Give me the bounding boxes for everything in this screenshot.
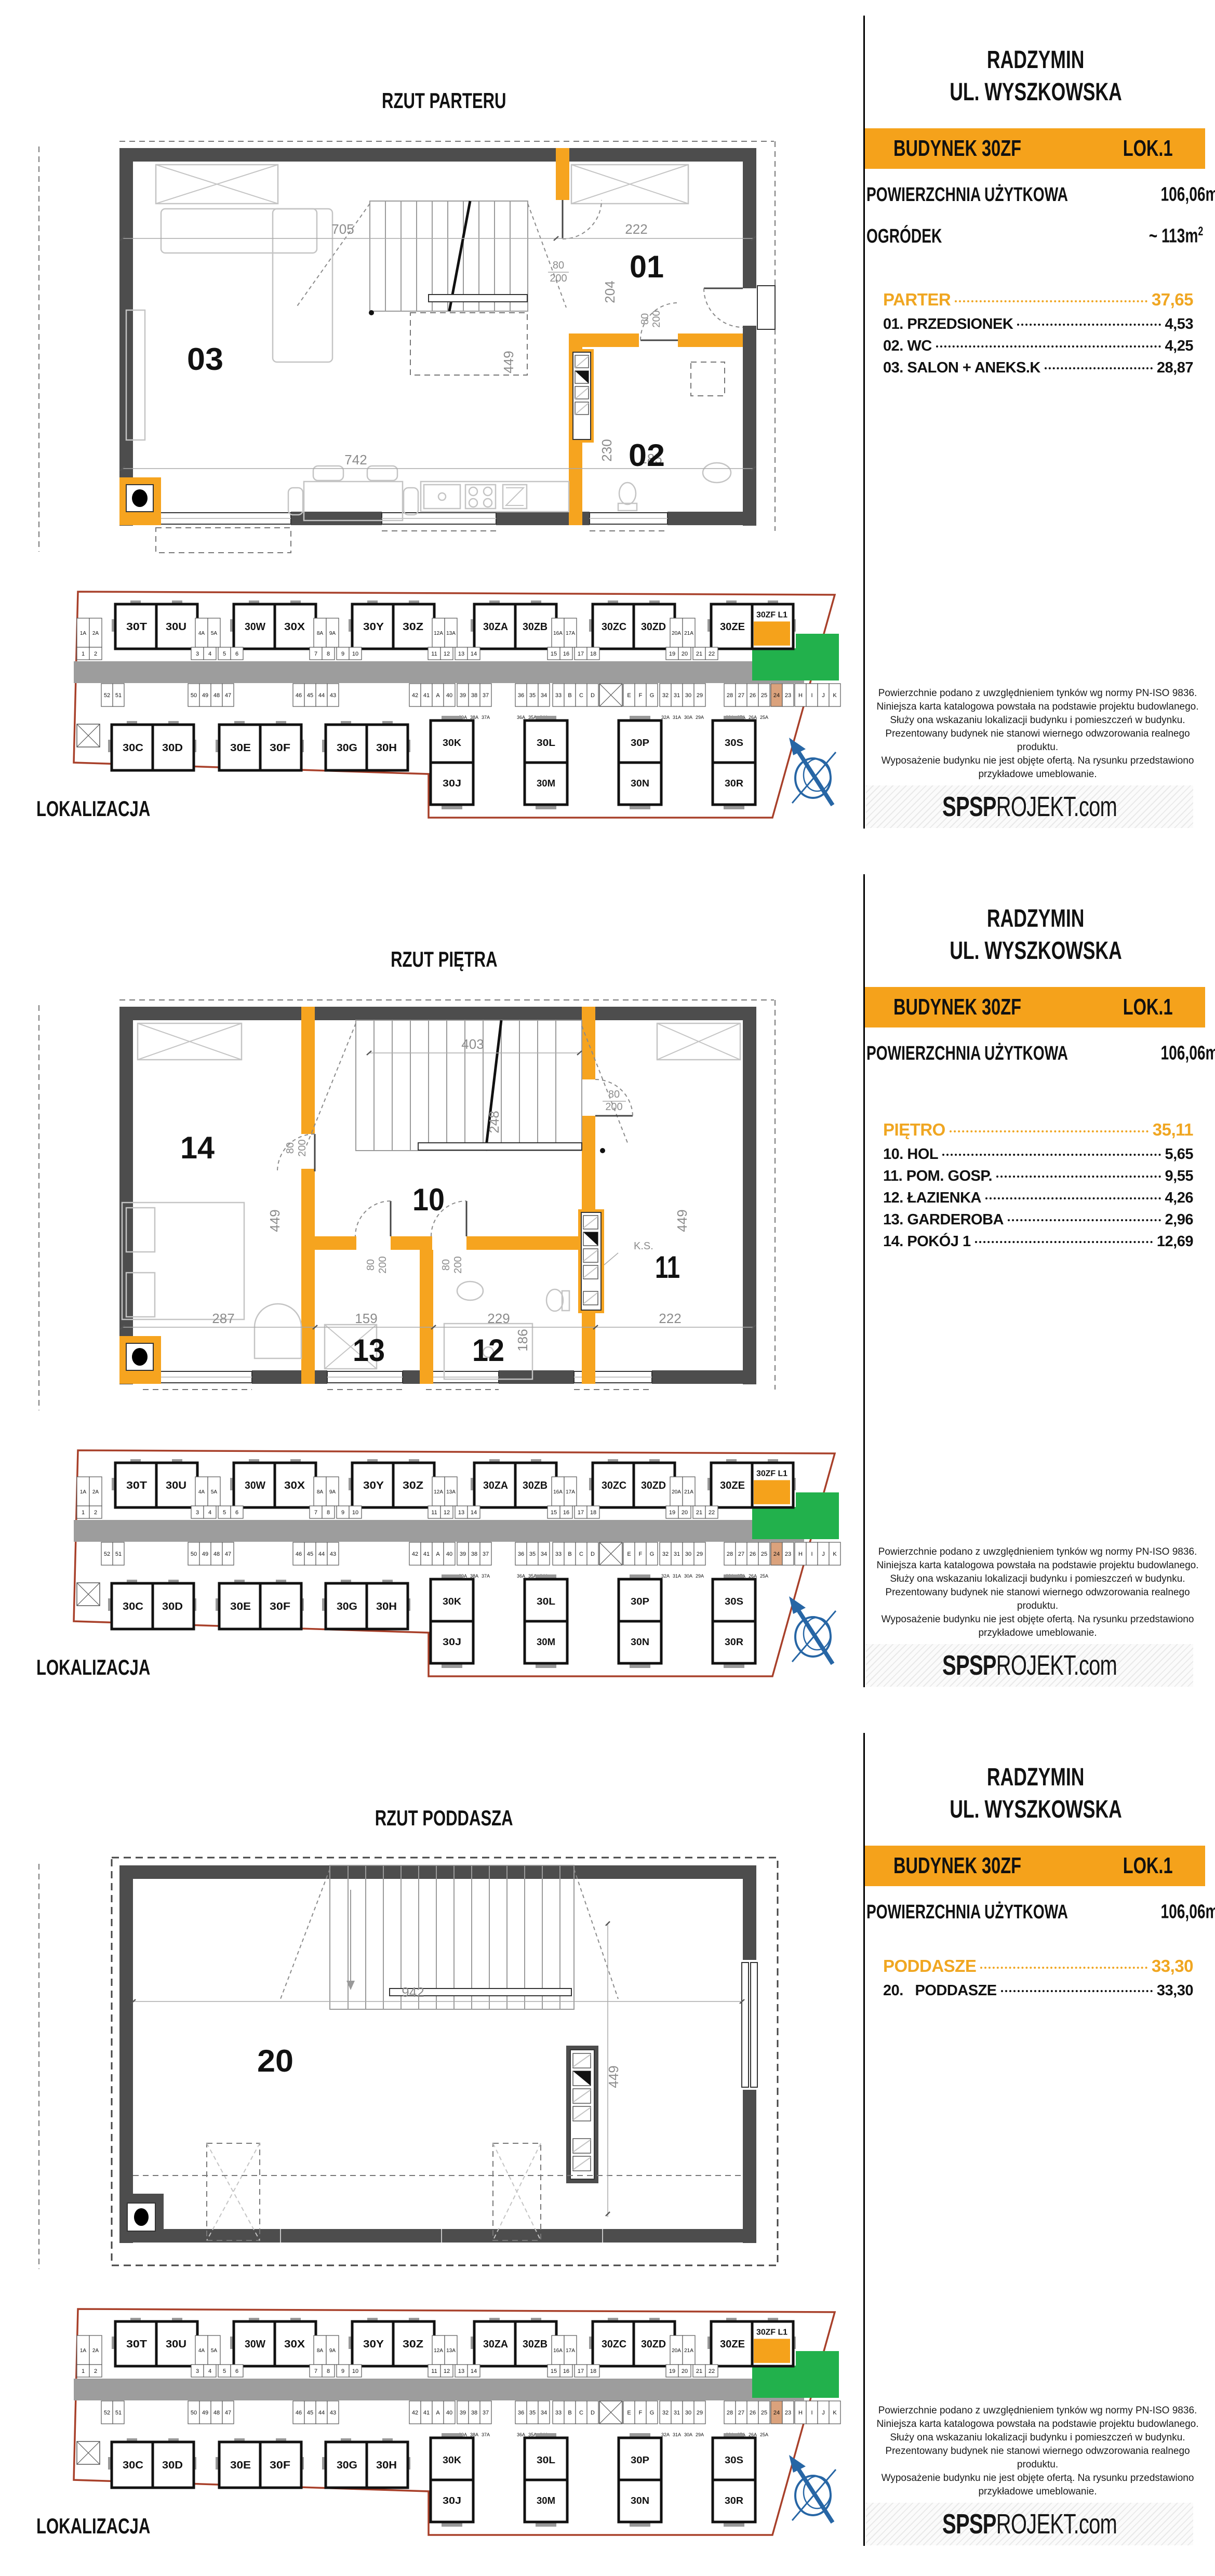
road	[74, 2379, 804, 2400]
parking-stall-number: 17A	[566, 631, 575, 636]
parking-stall-number: 17	[578, 651, 584, 657]
parking-stall-number: 13	[458, 2368, 464, 2374]
logo-suffix: .com	[1073, 2508, 1117, 2540]
disclaimer-line: Wyposażenie budynku nie jest objęte ofer…	[867, 2472, 1208, 2485]
parking-stall-number: 43	[330, 2410, 336, 2416]
house-label-30W: 30W	[245, 2339, 265, 2350]
parking-sub-number: 25A	[760, 1573, 768, 1579]
parking-stall-number: 18	[590, 1510, 596, 1516]
parking-stall-number: 14	[471, 651, 477, 657]
parking-sub-number: 29A	[696, 715, 704, 720]
svg-text:02: 02	[629, 438, 665, 473]
house-label-30ZE: 30ZE	[720, 1480, 745, 1491]
disclaimer-line: Powierzchnie podano z uwzględnieniem tyn…	[867, 687, 1208, 700]
usable-area-row: POWIERZCHNIA UŻYTKOWA 106,06m2	[866, 1042, 1203, 1065]
parking-stall-number: D	[591, 1551, 595, 1557]
room-area-value: 12,69	[1157, 1233, 1193, 1250]
parking-stall-number: 10	[352, 1510, 358, 1516]
room-label: 02. WC	[883, 338, 932, 355]
leader-dots	[980, 1967, 1147, 1969]
parking-stall-number: 36	[518, 2410, 524, 2416]
parking-stall-number: 48	[213, 2410, 220, 2416]
map-caption: LOKALIZACJA	[36, 796, 190, 821]
dim-lines	[131, 1921, 744, 2217]
leader-dots	[1045, 367, 1153, 369]
room-label: 03. SALON + ANEKS.K	[883, 359, 1040, 377]
house-label-30Y: 30Y	[363, 2339, 384, 2350]
parking-stall-number: 41	[423, 2410, 430, 2416]
highlight-unit-fill	[754, 1480, 790, 1504]
parking-stall-number: 36	[518, 1551, 524, 1557]
house-label-30F: 30F	[270, 2460, 290, 2471]
parking-stall-number: 13	[458, 1510, 464, 1516]
parking-stall-number: 51	[115, 692, 122, 699]
parking-stall-number: G	[650, 692, 655, 699]
garden-area	[752, 1507, 796, 1539]
svg-text:01: 01	[630, 249, 664, 284]
room-row: 14. POKÓJ 112,69	[883, 1233, 1193, 1250]
room-label: 13. GARDEROBA	[883, 1211, 1004, 1229]
logo-suffix: .com	[1073, 791, 1117, 822]
parking-stall-number: 16	[563, 2368, 569, 2374]
house-label-30R: 30R	[725, 778, 743, 789]
svg-text:449: 449	[267, 1209, 283, 1232]
parking-stall-number: 31	[674, 1551, 680, 1557]
svg-text:11: 11	[655, 1250, 680, 1285]
city-title: RADZYMIN	[864, 46, 1207, 74]
house-label-30ZA: 30ZA	[483, 1480, 508, 1491]
parking-stall-number: 2	[94, 651, 97, 657]
room-label: 12. ŁAZIENKA	[883, 1190, 981, 1207]
room-area-value: 33,30	[1152, 1956, 1193, 1976]
parking-stall-number: 8	[327, 1510, 330, 1516]
parking-stall-number: 1A	[80, 1489, 87, 1495]
parking-stall-number: 30	[685, 1551, 691, 1557]
svg-text:222: 222	[659, 1311, 681, 1326]
street-title: UL. WYSZKOWSKA	[864, 937, 1207, 965]
svg-text:200: 200	[452, 1256, 464, 1273]
house-label-30D: 30D	[162, 742, 183, 754]
parking-stall-number: 36	[518, 692, 524, 699]
parking-stall-number: 12	[444, 2368, 450, 2374]
house-label-30X: 30X	[284, 2339, 305, 2350]
logo-light: ROJEKT	[996, 2508, 1074, 2540]
garden-area	[752, 648, 796, 680]
parking-stall-number: 2	[94, 2368, 97, 2374]
parking-stall-number: 35	[529, 1551, 536, 1557]
parking-stall-number: 4	[208, 651, 211, 657]
parking-stall-number: 41	[423, 692, 430, 699]
road	[74, 661, 804, 683]
parking-stall-number: 22	[709, 1510, 715, 1516]
parking-stall-number: 12A	[434, 1489, 443, 1495]
house-label-30K: 30K	[443, 1596, 461, 1607]
parking-stall-number: 45	[307, 2410, 313, 2416]
house-label-30ZC: 30ZC	[602, 2339, 626, 2350]
parking-sub-number: 25A	[760, 2432, 768, 2437]
room-label: PARTER	[883, 290, 951, 310]
house-label-30K: 30K	[443, 738, 461, 748]
page-title: RZUT PODDASZA	[223, 1806, 665, 1831]
disclaimer-line: przykładowe umeblowanie.	[867, 1626, 1208, 1640]
parking-stall-number: 1A	[80, 2348, 87, 2354]
house-label-30M: 30M	[537, 2495, 555, 2506]
house-label-30Z: 30Z	[403, 1480, 423, 1491]
parking-stall-number: 17A	[566, 2348, 575, 2354]
svg-text:705: 705	[331, 221, 354, 237]
parking-stall-number: 1	[82, 2368, 85, 2374]
house-label-30K: 30K	[443, 2455, 461, 2465]
parking-stall-number: C	[579, 692, 583, 699]
parking-stall-number: 3	[196, 2368, 199, 2374]
parking-stall-number: 10	[352, 651, 358, 657]
logo-bold: SPSP	[942, 2508, 996, 2540]
skylights	[133, 2143, 743, 2240]
parking-stall-number: 52	[104, 2410, 110, 2416]
house-label-30ZF L1: 30ZF L1	[756, 1469, 787, 1478]
parking-stall-number: 20	[682, 651, 688, 657]
parking-stall-number: 10	[352, 2368, 358, 2374]
house-label-30T: 30T	[126, 1480, 147, 1491]
parking-stall-number: 34	[541, 692, 547, 699]
house-label-30ZC: 30ZC	[602, 1480, 626, 1491]
house-label-30D: 30D	[162, 2460, 183, 2471]
parking-stall-number: 42	[412, 2410, 418, 2416]
house-label-30ZD: 30ZD	[641, 1480, 666, 1491]
svg-text:287: 287	[212, 1311, 234, 1326]
parking-stall-number: 30	[685, 2410, 691, 2416]
parking-stall-number: 9	[341, 651, 344, 657]
leader-dots	[985, 1197, 1161, 1199]
house-label-30ZA: 30ZA	[483, 621, 508, 633]
parking-stall-number: 9	[341, 2368, 344, 2374]
parking-stall-number: J	[822, 2410, 825, 2416]
parking-stall-number: 13A	[446, 1489, 456, 1495]
house-label-30F: 30F	[270, 1601, 290, 1612]
parking-stall-number: C	[579, 1551, 583, 1557]
house-label-30E: 30E	[230, 742, 251, 754]
parking-stall-number: 49	[202, 2410, 208, 2416]
parking-stall-number: 12	[444, 1510, 450, 1516]
garden-area	[796, 1492, 839, 1539]
parking-stall-number: K	[833, 692, 837, 699]
garden-area	[752, 2366, 796, 2398]
house-label-30ZB: 30ZB	[523, 2339, 548, 2350]
house-label-30G: 30G	[337, 742, 357, 754]
unit-name: LOK.1	[1123, 136, 1173, 162]
house-label-30E: 30E	[230, 2460, 251, 2471]
svg-text:449: 449	[606, 2065, 621, 2088]
parking-stall-number: 24	[773, 2410, 780, 2416]
parking-stall-number: 23	[785, 692, 791, 699]
parking-stall-number: 47	[225, 2410, 231, 2416]
street-title: UL. WYSZKOWSKA	[864, 1795, 1207, 1824]
building-banner: BUDYNEK 30ZF LOK.1	[865, 128, 1205, 169]
svg-text:80: 80	[285, 1142, 296, 1154]
parking-stall-number: 33	[555, 692, 562, 699]
parking-stall-number: 32	[662, 1551, 669, 1557]
parking-stall-number: 38	[471, 1551, 477, 1557]
house-label-30W: 30W	[245, 1480, 265, 1491]
parking-stall-number: 23	[785, 1551, 791, 1557]
house-label-30M: 30M	[537, 1637, 555, 1647]
house-label-30M: 30M	[537, 778, 555, 789]
parking-stall-number: 50	[191, 692, 197, 699]
svg-text:248: 248	[486, 1111, 502, 1133]
parking-stall-number: 9A	[329, 2348, 336, 2354]
sofa	[161, 209, 317, 253]
city-title: RADZYMIN	[864, 904, 1207, 933]
room-list: PARTER37,6501. PRZEDSIONEK4,5302. WC4,25…	[883, 290, 1193, 381]
house-label-30C: 30C	[123, 1601, 143, 1612]
house-label-30P: 30P	[631, 2455, 649, 2465]
floor-plan-parter: 705 222 204 449 742 230 185 80 200 80 20…	[31, 136, 779, 557]
svg-text:80: 80	[553, 260, 564, 271]
parking-stall-number: 1	[82, 651, 85, 657]
parking-stall-number: 34	[541, 1551, 547, 1557]
parking-stall-number: I	[811, 692, 812, 699]
parking-stall-number: 3	[196, 1510, 199, 1516]
svg-text:K.S.: K.S.	[634, 1240, 653, 1252]
terrace	[156, 528, 291, 553]
highlight-unit-fill	[754, 621, 790, 645]
logo-light: ROJEKT	[996, 1650, 1074, 1681]
parking-stall-number: 38	[471, 2410, 477, 2416]
parking-stall-number: F	[639, 692, 643, 699]
building-banner: BUDYNEK 30ZF LOK.1	[865, 1846, 1205, 1886]
page-title: RZUT PARTERU	[223, 88, 665, 113]
parking-stall-number: J	[822, 1551, 825, 1557]
house-label-30L: 30L	[537, 738, 555, 748]
parking-stall-number: 44	[318, 2410, 325, 2416]
parking-sub-number: 30A	[684, 2432, 692, 2437]
panel-pietro: RZUT PIĘTRA	[0, 859, 1215, 1717]
parking-stall-number: 41	[423, 1551, 430, 1557]
parking-stall-number: 39	[460, 2410, 466, 2416]
parking-stall-number: 35	[529, 2410, 536, 2416]
parking-stall-number: H	[798, 2410, 803, 2416]
parking-stall-number: 48	[213, 1551, 220, 1557]
house-label-30P: 30P	[631, 738, 649, 748]
parking-stall-number: 5A	[211, 2348, 218, 2354]
parking-stall-number: 2A	[92, 2348, 99, 2354]
parking-stall-number: 7	[314, 2368, 317, 2374]
parking-stall-number: 44	[318, 692, 325, 699]
window-right	[742, 1963, 757, 2087]
location-map: 30T30U30W30X30Y30Z30ZA30ZB30ZC30ZD30ZE30…	[73, 1445, 862, 1695]
house-label-30S: 30S	[725, 2455, 743, 2465]
parking-stall-number: E	[627, 692, 631, 699]
house-label-30ZF L1: 30ZF L1	[756, 2328, 787, 2337]
parking-stall-number: 50	[191, 1551, 197, 1557]
svg-text:200: 200	[377, 1256, 389, 1273]
disclaimer-line: Służy ona wskazaniu lokalizacji budynku …	[867, 714, 1208, 727]
parking-stall-number: 22	[709, 651, 715, 657]
house-label-30P: 30P	[631, 1596, 649, 1607]
house-label-30ZF L1: 30ZF L1	[756, 610, 787, 619]
washbasin	[703, 463, 731, 483]
windows	[143, 1371, 652, 1390]
parking-stall-number: 20A	[672, 631, 681, 636]
bed	[122, 1203, 244, 1319]
room-label: 14. POKÓJ 1	[883, 1233, 971, 1250]
parking-stall-number: 38	[471, 692, 477, 699]
parking-stall-number: 33	[555, 1551, 562, 1557]
parking-stall-number: 47	[225, 692, 231, 699]
parking-stall-number: 7	[314, 651, 317, 657]
disclaimer-line: Niniejsza karta katalogowa powstała na p…	[867, 2418, 1208, 2431]
house-label-30Y: 30Y	[363, 621, 384, 633]
house-label-30J: 30J	[443, 778, 461, 789]
parking-stall-number: 31	[674, 692, 680, 699]
logo-band: SPSPROJEKT.com	[866, 785, 1193, 828]
parking-stall-number: 14	[471, 1510, 477, 1516]
house-label-30C: 30C	[123, 742, 143, 754]
parking-stall-number: 20A	[672, 2348, 681, 2354]
disclaimer-line: Służy ona wskazaniu lokalizacji budynku …	[867, 1572, 1208, 1586]
parking-stall-number: 13	[458, 651, 464, 657]
washbasin	[457, 1282, 483, 1300]
parking-stall-number: 2	[94, 1510, 97, 1516]
parking-stall-number: 4	[208, 2368, 211, 2374]
room-area-value: 28,87	[1157, 359, 1193, 377]
parking-stall-number: 51	[115, 1551, 122, 1557]
parking-stall-number: 21A	[684, 1489, 693, 1495]
list-header-row: PIĘTRO35,11	[883, 1120, 1193, 1140]
parking-sub-number: 31A	[673, 715, 681, 720]
room-area-value: 4,25	[1165, 338, 1193, 355]
parking-stall-number: 52	[104, 692, 110, 699]
house-label-30U: 30U	[166, 2339, 186, 2350]
parking-stall-number: 42	[412, 1551, 418, 1557]
parking-stall-number: K	[833, 2410, 837, 2416]
parking-stall-number: K	[833, 1551, 837, 1557]
parking-stall-number: H	[798, 1551, 803, 1557]
building-name: BUDYNEK 30ZF	[893, 136, 1021, 162]
leader-dots	[950, 1130, 1149, 1132]
parking-stall-number: 12A	[434, 2348, 443, 2354]
house-label-30C: 30C	[123, 2460, 143, 2471]
disclaimer-line: Wyposażenie budynku nie jest objęte ofer…	[867, 1613, 1208, 1626]
toilet	[619, 483, 636, 504]
parking-stall-number: 27	[738, 1551, 744, 1557]
room-row: 02. WC4,25	[883, 338, 1193, 355]
room-row: 12. ŁAZIENKA4,26	[883, 1190, 1193, 1207]
house-label-30R: 30R	[725, 2495, 743, 2506]
title-text: RZUT PARTERU	[382, 88, 506, 113]
parking-sub-number: 30A	[684, 1573, 692, 1579]
room-area-value: 2,96	[1165, 1211, 1193, 1229]
svg-text:200: 200	[550, 273, 567, 284]
parking-stall-number: B	[568, 692, 571, 699]
parking-stall-number: 25	[761, 2410, 767, 2416]
room-area-value: 4,53	[1165, 316, 1193, 333]
room-area-value: 9,55	[1165, 1168, 1193, 1185]
svg-text:20: 20	[257, 2044, 293, 2078]
disclaimer-line: Niniejsza karta katalogowa powstała na p…	[867, 700, 1208, 714]
house-label-30Y: 30Y	[363, 1480, 384, 1491]
room-label: 20. PODDASZE	[883, 1982, 997, 1999]
unit-name: LOK.1	[1123, 1853, 1173, 1879]
parking-sub-number: 37A	[482, 2432, 490, 2437]
leader-dots	[936, 345, 1161, 348]
leader-dots	[1008, 1219, 1161, 1221]
kitchen-counter	[421, 482, 569, 512]
svg-text:222: 222	[625, 221, 647, 237]
parking-stall-number: 18	[590, 651, 596, 657]
svg-text:200: 200	[605, 1101, 622, 1113]
garden-area	[796, 634, 839, 680]
location-map: 30T30U30W30X30Y30Z30ZA30ZB30ZC30ZD30ZE30…	[73, 586, 862, 836]
room-list: PIĘTRO35,1110. HOL5,6511. POM. GOSP.9,55…	[883, 1120, 1193, 1255]
room-row: 11. POM. GOSP.9,55	[883, 1168, 1193, 1185]
parking-stall-number: 17A	[566, 1489, 575, 1495]
house-label-30L: 30L	[537, 1596, 555, 1607]
parking-stall-number: 51	[115, 2410, 122, 2416]
catalog-page: { "colors":{"accent":"#F5A21B","plan_wal…	[0, 0, 1215, 2576]
room-label: 10. HOL	[883, 1146, 938, 1163]
leader-dots	[955, 300, 1147, 302]
house-label-30R: 30R	[725, 1637, 743, 1647]
parking-sub-number: 30A	[684, 715, 692, 720]
parking-stall-number: 37	[483, 1551, 489, 1557]
house-label-30U: 30U	[166, 1480, 186, 1491]
logo-bold: SPSP	[942, 1650, 996, 1681]
parking-stall-number: 8A	[317, 1489, 324, 1495]
parking-stall-number: 19	[669, 1510, 675, 1516]
parking-stall-number: 30	[685, 692, 691, 699]
parking-stall-number: 31	[674, 2410, 680, 2416]
parking-stall-number: 4A	[198, 2348, 205, 2354]
disclaimer-line: Prezentowany budynek nie stanowi wierneg…	[867, 727, 1208, 754]
parking-stall-number: G	[650, 2410, 655, 2416]
road	[74, 1520, 804, 1542]
parking-stall-number: C	[579, 2410, 583, 2416]
parking-stall-number: D	[591, 692, 595, 699]
room-label: PODDASZE	[883, 1956, 976, 1976]
room-list: PODDASZE33,3020. PODDASZE33,30	[883, 1956, 1193, 2004]
room-row: 03. SALON + ANEKS.K28,87	[883, 359, 1193, 377]
parking-stall-number: 27	[738, 692, 744, 699]
svg-text:80: 80	[440, 1259, 452, 1271]
floor-plan-poddasze: 942 449 20	[31, 1853, 779, 2274]
parking-stall-number: 23	[785, 2410, 791, 2416]
parking-stall-number: 44	[318, 1551, 325, 1557]
disclaimer-line: Niniejsza karta katalogowa powstała na p…	[867, 1559, 1208, 1572]
svg-text:14: 14	[180, 1130, 215, 1165]
house-label-30N: 30N	[631, 778, 649, 789]
stairs	[281, 1865, 618, 2009]
parking-stall-number: B	[568, 1551, 571, 1557]
parking-stall-number: 8	[327, 651, 330, 657]
house-label-30ZE: 30ZE	[720, 2339, 745, 2350]
parking-stall-number: 13A	[446, 631, 456, 636]
svg-text:230: 230	[599, 439, 615, 461]
room-area-value: 33,30	[1157, 1982, 1193, 1999]
parking-sub-number: 29A	[696, 1573, 704, 1579]
usable-area-row: POWIERZCHNIA UŻYTKOWA 106,06m2	[866, 1900, 1203, 1924]
house-label-30T: 30T	[126, 2339, 147, 2350]
parking-stall-number: 5A	[211, 631, 218, 636]
house-label-30H: 30H	[376, 742, 397, 754]
parking-stall-number: 28	[727, 1551, 733, 1557]
parking-stall-number: 16A	[553, 1489, 563, 1495]
parking-stall-number: 13A	[446, 2348, 456, 2354]
parking-sub-number: 25A	[760, 715, 768, 720]
building-name: BUDYNEK 30ZF	[893, 994, 1021, 1020]
svg-text:200: 200	[651, 310, 662, 327]
svg-text:80: 80	[639, 313, 651, 325]
